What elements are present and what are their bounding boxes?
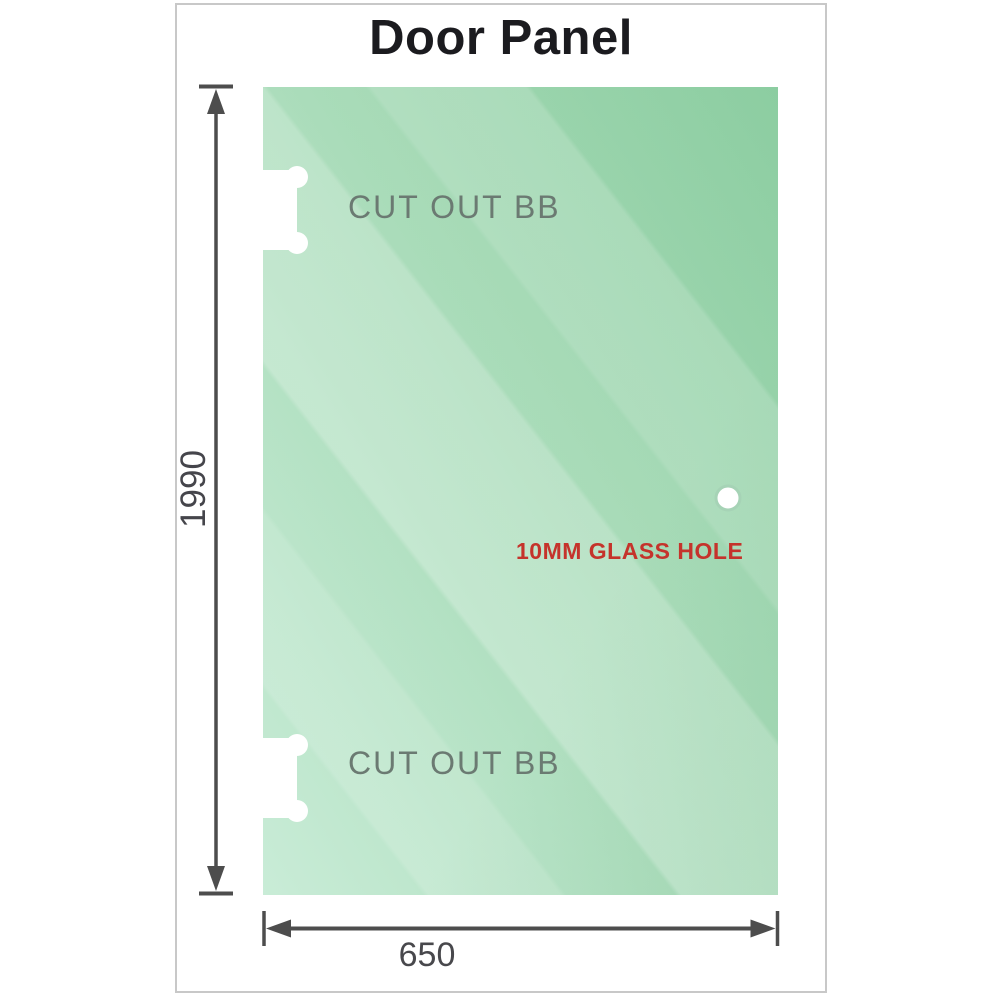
door-panel-diagram: Door Panel [0,0,1000,1000]
glass-hole-label: 10MM GLASS HOLE [516,538,743,565]
page-title: Door Panel [175,10,827,66]
cutout-bottom-label: CUT OUT BB [348,745,561,782]
width-dimension-label: 650 [377,936,477,975]
cutout-top-label: CUT OUT BB [348,189,561,226]
height-dimension-label: 1990 [174,450,214,528]
